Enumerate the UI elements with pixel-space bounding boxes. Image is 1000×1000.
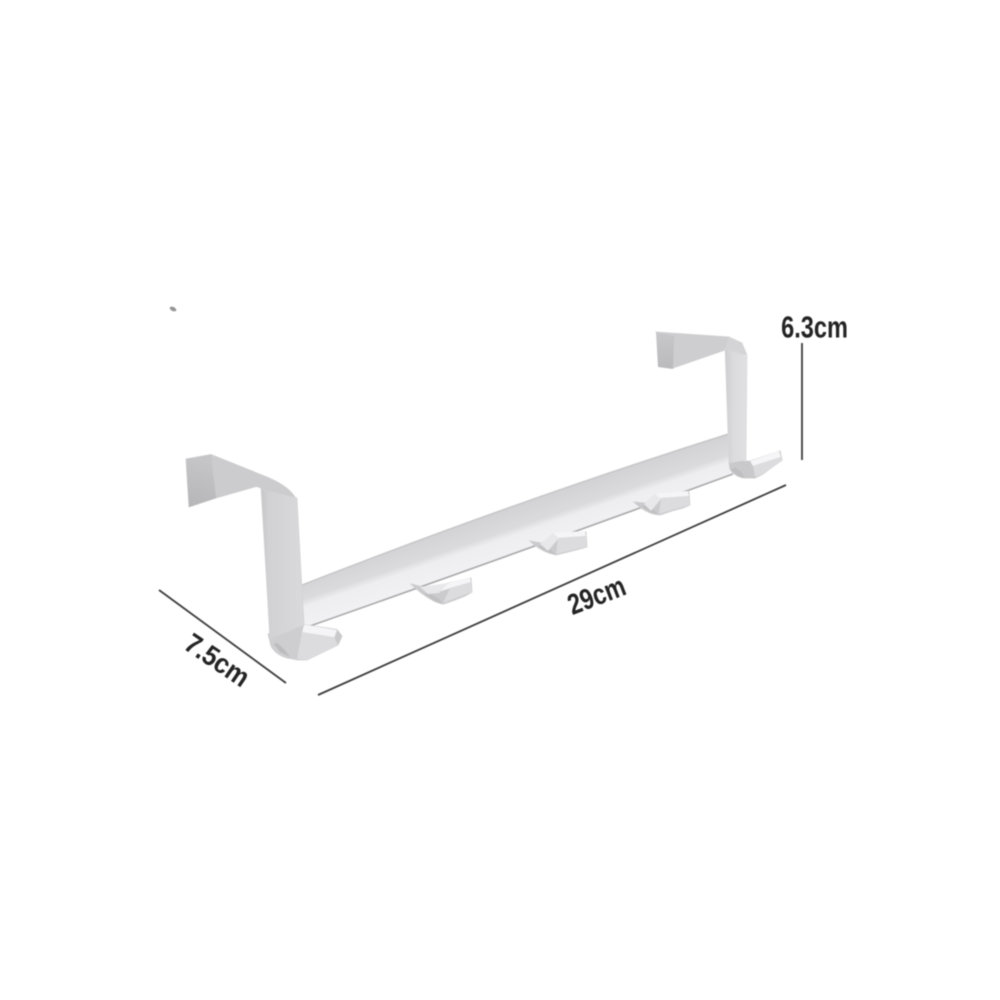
svg-text:6.3cm: 6.3cm <box>781 309 848 344</box>
